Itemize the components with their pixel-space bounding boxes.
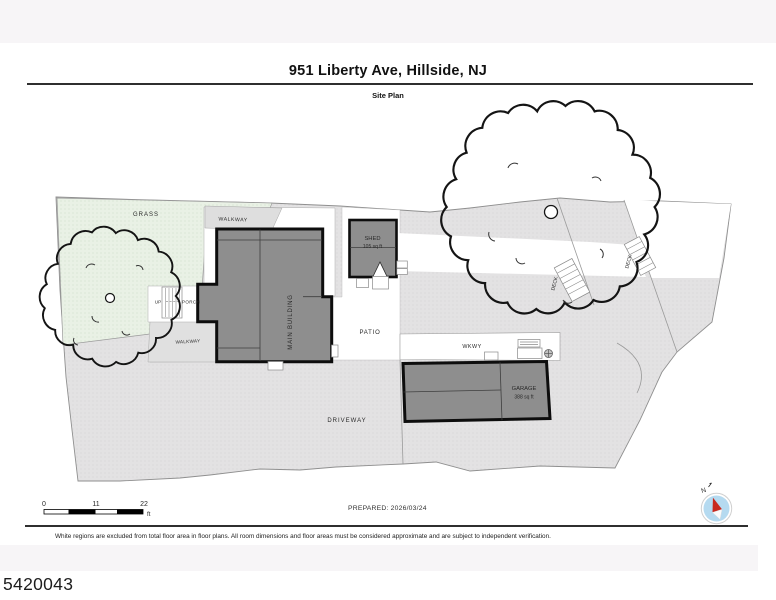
wkwy-label: WKWY <box>462 344 481 350</box>
compass: N <box>700 483 731 524</box>
prepared-date: PREPARED: 2026/03/24 <box>348 505 427 512</box>
compass-n-label: N <box>700 487 707 495</box>
footer-divider <box>25 525 748 527</box>
patio-label: PATIO <box>359 330 380 336</box>
shed-area-label: 105 sq ft <box>363 244 383 250</box>
shed-name-label: SHED <box>364 236 380 242</box>
scale-unit-label: ft <box>147 511 151 518</box>
walkway-upper-label: WALKWAY <box>218 216 247 223</box>
scale-tick-start: 0 <box>42 501 46 508</box>
scale-tick-end: 22 <box>140 501 148 508</box>
up-label: UP <box>155 300 161 305</box>
driveway-label: DRIVEWAY <box>327 418 366 424</box>
tree-small-trunk <box>106 294 115 303</box>
disclaimer-text: White regions are excluded from total fl… <box>55 533 615 540</box>
scale-bar: 0 11 22 ft <box>42 501 151 518</box>
grass-label: GRASS <box>133 212 159 218</box>
scale-tick-mid: 11 <box>92 501 99 508</box>
main-building-label: MAIN BUILDING <box>288 294 294 349</box>
porch-label: PORCH <box>182 300 200 305</box>
listing-id: 5420043 <box>3 574 73 595</box>
garage-area-label: 388 sq ft <box>514 395 534 401</box>
garage-name-label: GARAGE <box>512 386 537 392</box>
main-building <box>198 229 332 362</box>
tree-large-trunk <box>545 206 558 219</box>
